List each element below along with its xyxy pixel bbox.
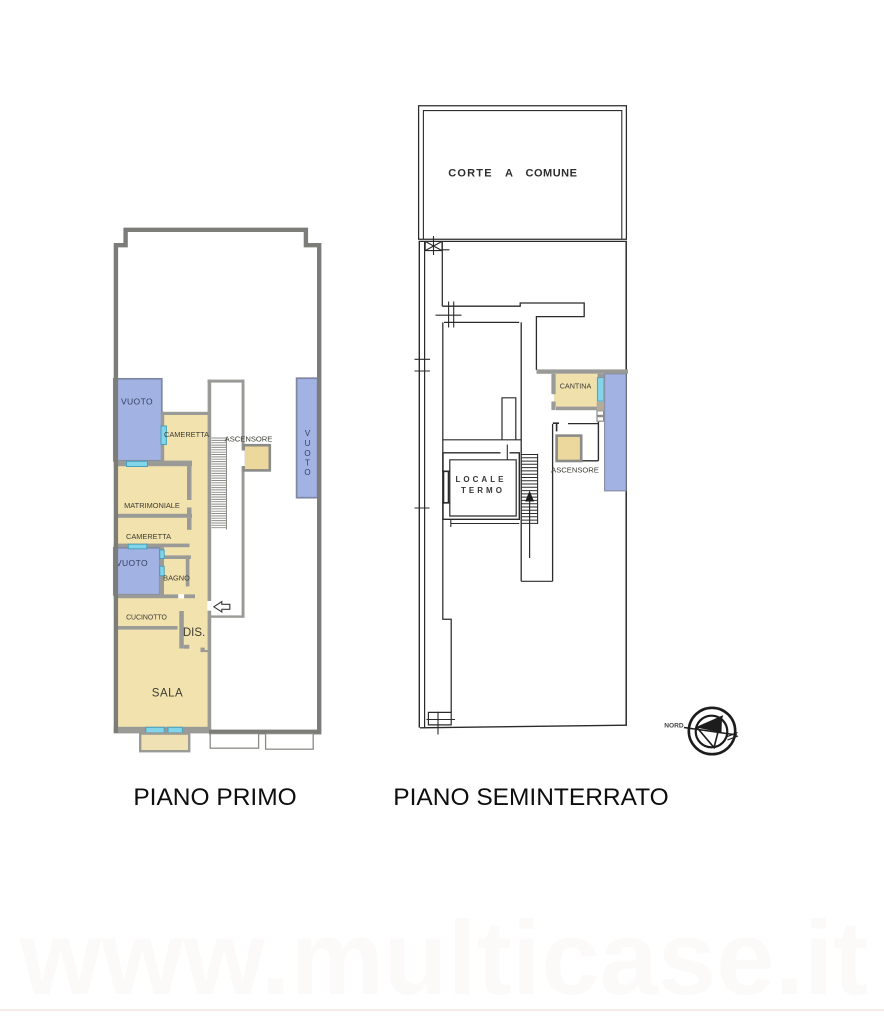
svg-text:TERMO: TERMO: [461, 486, 505, 495]
svg-text:O: O: [304, 449, 310, 458]
svg-text:SALA: SALA: [152, 688, 183, 700]
svg-text:DIS.: DIS.: [183, 627, 205, 639]
svg-text:VUOTO: VUOTO: [116, 558, 148, 568]
svg-text:T: T: [305, 459, 310, 468]
svg-text:PIANO SEMINTERRATO: PIANO SEMINTERRATO: [393, 784, 668, 811]
svg-text:CAMERETTA: CAMERETTA: [126, 532, 171, 541]
svg-text:MATRIMONIALE: MATRIMONIALE: [124, 501, 180, 510]
svg-text:BAGNO: BAGNO: [163, 574, 190, 583]
svg-text:NORD: NORD: [664, 723, 684, 730]
svg-text:ASCENSORE: ASCENSORE: [225, 434, 273, 443]
svg-text:COMUNE: COMUNE: [526, 168, 578, 180]
svg-text:U: U: [305, 439, 311, 448]
svg-text:ASCENSORE: ASCENSORE: [551, 466, 599, 475]
svg-text:A: A: [505, 168, 513, 180]
svg-text:CORTE: CORTE: [448, 168, 493, 180]
svg-text:V: V: [305, 429, 311, 438]
svg-text:LOCALE: LOCALE: [456, 475, 507, 484]
svg-text:VUOTO: VUOTO: [121, 397, 153, 407]
svg-text:CUCINOTTO: CUCINOTTO: [126, 615, 167, 622]
svg-text:PIANO PRIMO: PIANO PRIMO: [133, 784, 296, 811]
svg-text:CANTINA: CANTINA: [560, 382, 592, 391]
svg-text:CAMERETTA: CAMERETTA: [164, 430, 209, 439]
svg-text:O: O: [304, 468, 310, 477]
